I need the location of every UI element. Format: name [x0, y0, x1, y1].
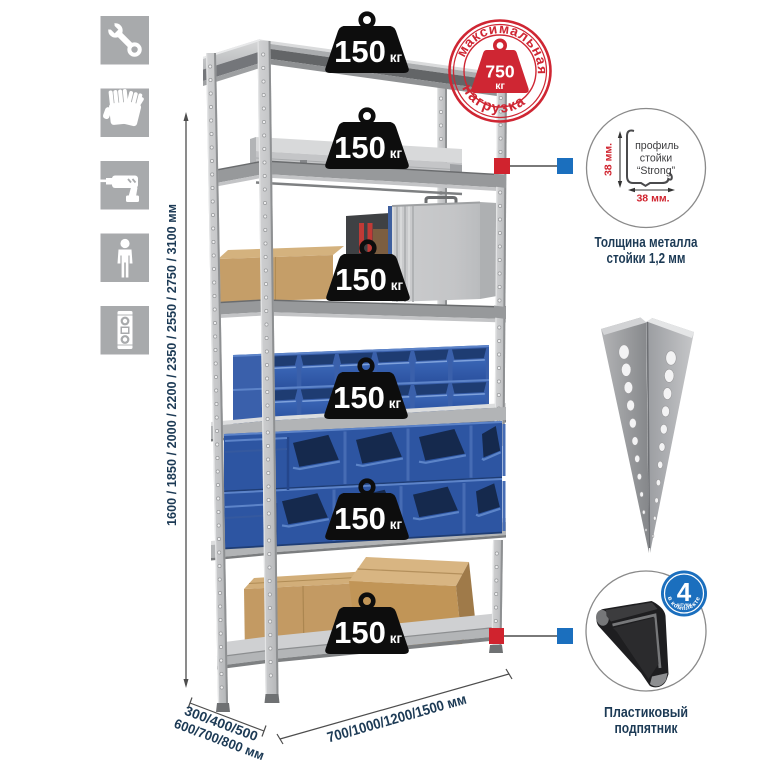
svg-text:кг: кг — [390, 517, 403, 532]
svg-text:кг: кг — [390, 50, 403, 65]
svg-text:150: 150 — [335, 262, 387, 297]
svg-text:1600 / 1850 / 2000 / 2200 / 23: 1600 / 1850 / 2000 / 2200 / 2350 / 2550 … — [164, 204, 179, 526]
svg-text:стойки 1,2 мм: стойки 1,2 мм — [607, 251, 686, 267]
svg-text:150: 150 — [333, 380, 385, 415]
svg-text:750: 750 — [485, 62, 514, 82]
svg-text:38 мм.: 38 мм. — [636, 193, 669, 205]
svg-text:150: 150 — [334, 615, 386, 650]
svg-text:150: 150 — [334, 501, 386, 536]
svg-text:кг: кг — [391, 278, 404, 293]
svg-text:150: 150 — [334, 34, 386, 69]
svg-text:кг: кг — [390, 631, 403, 646]
svg-text:38 мм.: 38 мм. — [603, 143, 615, 176]
svg-text:профиль: профиль — [635, 140, 679, 152]
svg-text:кг: кг — [390, 146, 403, 161]
svg-text:кг: кг — [389, 396, 402, 411]
svg-text:подпятник: подпятник — [615, 721, 679, 737]
svg-text:150: 150 — [334, 130, 386, 165]
svg-text:стойки: стойки — [640, 153, 672, 165]
svg-text:Пластиковый: Пластиковый — [604, 705, 688, 721]
svg-text:“Strong”: “Strong” — [637, 165, 676, 177]
svg-text:Толщина металла: Толщина металла — [595, 235, 699, 251]
svg-text:кг: кг — [495, 80, 505, 92]
